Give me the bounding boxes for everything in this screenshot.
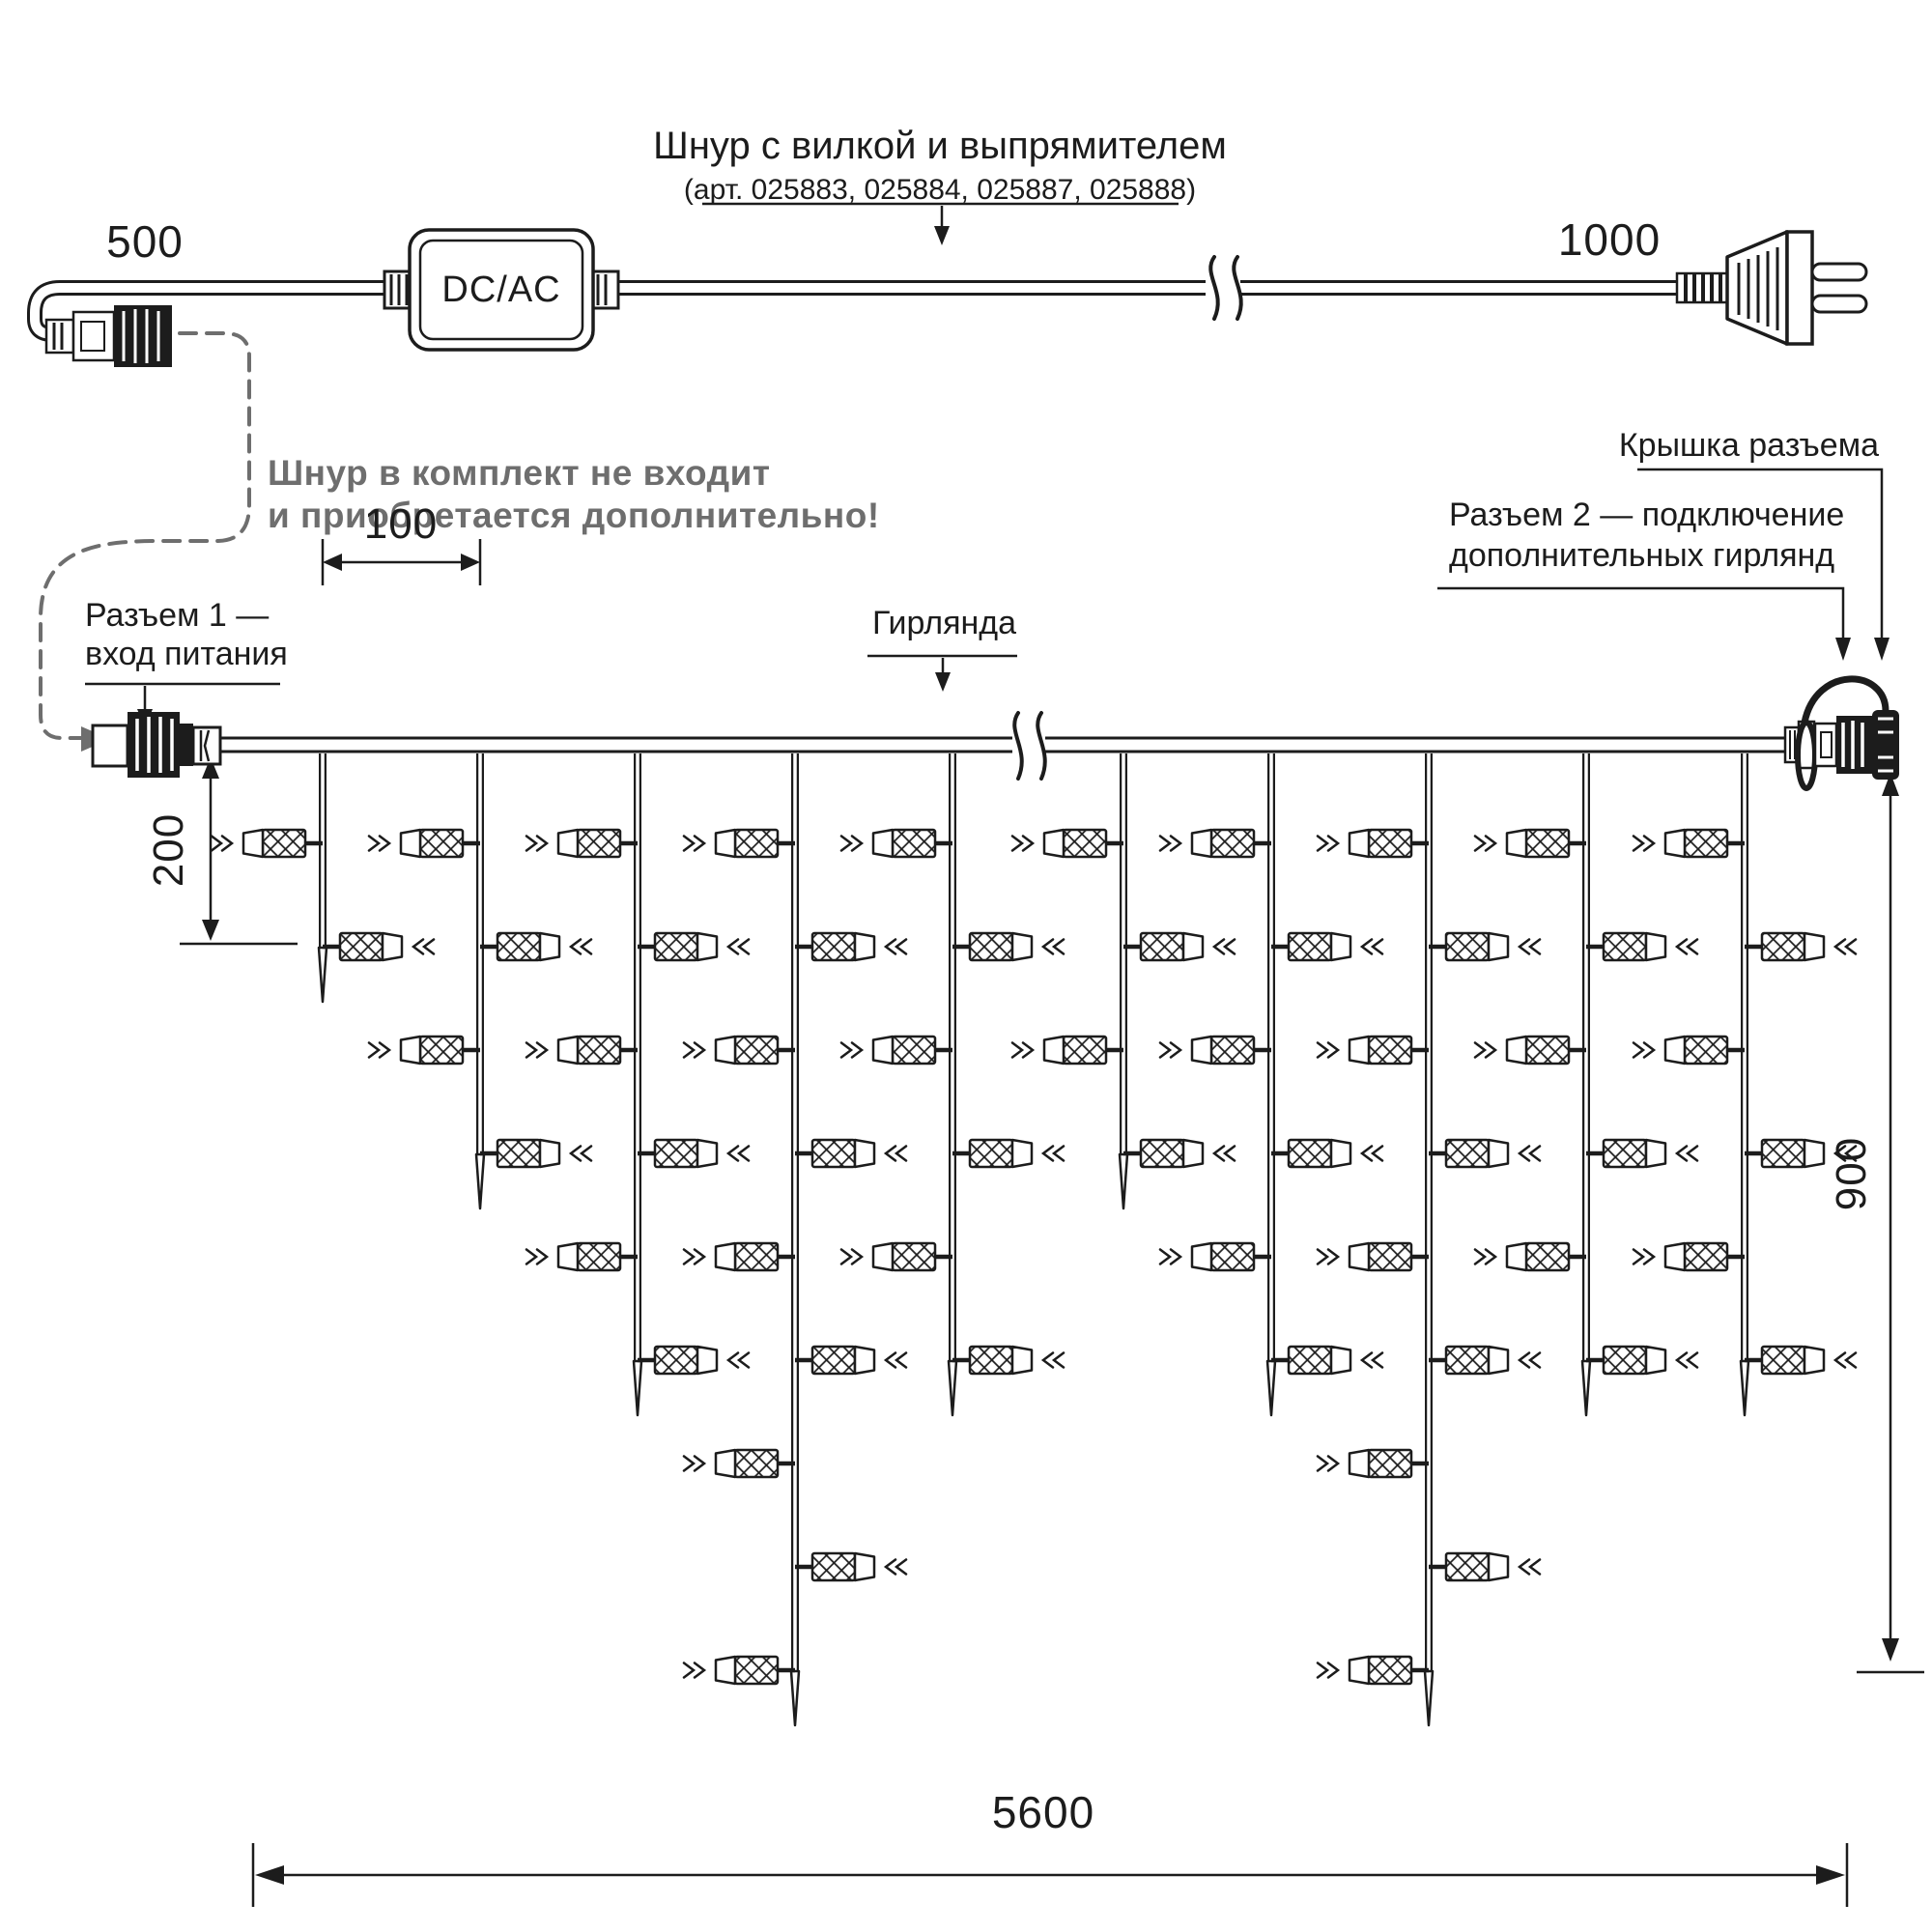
bulb-icon (480, 933, 591, 960)
bulb-rays-icon (369, 837, 379, 851)
dcac-label: DC/AC (419, 270, 583, 312)
cord-end-connector-icon (46, 305, 172, 367)
dimension-100-label: 100 (348, 500, 454, 550)
bulb-rays-icon (1328, 1043, 1338, 1058)
dimension-500-label: 500 (87, 216, 203, 268)
bulb-rays-icon (1328, 837, 1338, 851)
bulb-rays-icon (571, 940, 581, 954)
bulb-rays-icon (571, 1147, 581, 1161)
bulb-rays-icon (1475, 837, 1485, 851)
dimension-1000-label: 1000 (1542, 214, 1677, 266)
bulb-icon (684, 1243, 795, 1270)
bulb-rays-icon (413, 940, 423, 954)
bulb-icon (1745, 933, 1856, 960)
bulb-rays-icon (1023, 837, 1033, 851)
bulb-rays-icon (1520, 1147, 1529, 1161)
bulb-rays-icon (684, 1457, 694, 1471)
bulb-rays-icon (695, 837, 704, 851)
bulb-rays-icon (728, 1147, 738, 1161)
bulb-rays-icon (886, 1560, 895, 1575)
drop-tip-icon (1741, 1361, 1748, 1415)
bulb-rays-icon (1328, 1457, 1338, 1471)
bulb-icon (369, 830, 480, 857)
bulb-icon (1429, 1140, 1540, 1167)
connector-razem2-icon (1785, 679, 1899, 788)
bulb-icon (526, 830, 638, 857)
bulb-rays-icon (896, 1560, 906, 1575)
bulb-icon (1318, 1243, 1429, 1270)
bulb-icon (795, 1347, 906, 1374)
bulb-rays-icon (1328, 1250, 1338, 1264)
razem2-label-line2: дополнительных гирлянд (1449, 537, 1833, 575)
bulb-rays-icon (1318, 1663, 1327, 1678)
bulb-icon (1429, 1347, 1540, 1374)
razem1-label-line2: вход питания (85, 636, 288, 673)
bulb-rays-icon (739, 1353, 749, 1368)
bulb-rays-icon (526, 1250, 536, 1264)
razem1-label-line1: Разъем 1 — (85, 597, 269, 635)
bulb-rays-icon (1835, 1353, 1845, 1368)
bulb-rays-icon (537, 1043, 547, 1058)
bulb-icon (1586, 1140, 1697, 1167)
bulb-rays-icon (1214, 1147, 1224, 1161)
bulb-icon (1318, 1450, 1429, 1477)
garland-drops (212, 753, 1856, 1725)
bulb-rays-icon (1214, 940, 1224, 954)
bulb-rays-icon (526, 1043, 536, 1058)
bulb-icon (369, 1037, 480, 1064)
bulb-icon (795, 933, 906, 960)
bulb-rays-icon (841, 1250, 851, 1264)
bulb-rays-icon (380, 837, 389, 851)
garland-drop (1475, 753, 1697, 1415)
bulb-rays-icon (1171, 837, 1180, 851)
bulb-rays-icon (582, 1147, 591, 1161)
bulb-icon (1586, 1347, 1697, 1374)
garland-drop (369, 753, 591, 1208)
bulb-rays-icon (1328, 1663, 1338, 1678)
bulb-rays-icon (1688, 1353, 1697, 1368)
bulb-rays-icon (1644, 837, 1654, 851)
bulb-icon (1271, 933, 1382, 960)
bulb-rays-icon (1373, 1147, 1382, 1161)
bulb-rays-icon (582, 940, 591, 954)
bulb-icon (1160, 830, 1271, 857)
bulb-rays-icon (1362, 1353, 1372, 1368)
bulb-icon (1123, 1140, 1235, 1167)
drop-tip-icon (634, 1361, 641, 1415)
bulb-rays-icon (1486, 837, 1495, 851)
drop-tip-icon (1582, 1361, 1590, 1415)
bulb-icon (1271, 1140, 1382, 1167)
bulb-rays-icon (1160, 1250, 1170, 1264)
bulb-icon (1123, 933, 1235, 960)
garland-drop (1012, 753, 1235, 1208)
bulb-rays-icon (695, 1043, 704, 1058)
garland-drop (684, 753, 906, 1725)
bulb-rays-icon (728, 1353, 738, 1368)
garland-leader (867, 656, 1017, 692)
bulb-icon (526, 1243, 638, 1270)
diagram-linework (0, 0, 1932, 1932)
bulb-rays-icon (896, 1353, 906, 1368)
bulb-rays-icon (1012, 837, 1022, 851)
bulb-rays-icon (537, 837, 547, 851)
bulb-icon (1012, 1037, 1123, 1064)
cap-label: Крышка разъема (1546, 427, 1879, 465)
bulb-icon (1318, 1037, 1429, 1064)
bulb-icon (638, 1140, 749, 1167)
bulb-icon (1271, 1347, 1382, 1374)
bulb-rays-icon (1530, 940, 1540, 954)
bulb-rays-icon (1012, 1043, 1022, 1058)
bulb-icon (1634, 1243, 1745, 1270)
bulb-icon (480, 1140, 591, 1167)
bulb-rays-icon (1688, 940, 1697, 954)
bulb-rays-icon (1043, 1147, 1053, 1161)
bulb-rays-icon (1644, 1250, 1654, 1264)
bulb-rays-icon (1677, 1353, 1687, 1368)
razem2-label-line1: Разъем 2 — подключение (1449, 497, 1840, 534)
bulb-icon (1634, 1037, 1745, 1064)
bulb-icon (952, 933, 1064, 960)
bulb-rays-icon (1318, 837, 1327, 851)
bulb-rays-icon (1520, 1353, 1529, 1368)
bulb-rays-icon (886, 1147, 895, 1161)
bulb-rays-icon (1520, 940, 1529, 954)
drop-tip-icon (1120, 1154, 1127, 1208)
bulb-rays-icon (537, 1250, 547, 1264)
bulb-rays-icon (739, 1147, 749, 1161)
garland-drop (841, 753, 1064, 1415)
drop-tip-icon (949, 1361, 956, 1415)
bulb-rays-icon (1054, 940, 1064, 954)
bulb-rays-icon (1160, 837, 1170, 851)
bulb-rays-icon (1171, 1250, 1180, 1264)
power-cord (35, 288, 1677, 334)
bulb-rays-icon (1043, 1353, 1053, 1368)
bulb-rays-icon (526, 837, 536, 851)
bulb-rays-icon (1225, 1147, 1235, 1161)
bulb-rays-icon (1373, 940, 1382, 954)
bulb-icon (1160, 1243, 1271, 1270)
bulb-icon (1475, 1243, 1586, 1270)
drop-tip-icon (1267, 1361, 1275, 1415)
bulb-rays-icon (1846, 940, 1856, 954)
bulb-rays-icon (852, 837, 862, 851)
bulb-rays-icon (212, 837, 221, 851)
bulb-icon (1634, 830, 1745, 857)
garland-label: Гирлянда (872, 605, 1016, 642)
bulb-rays-icon (1362, 940, 1372, 954)
bulb-icon (1429, 1553, 1540, 1580)
bulb-rays-icon (695, 1457, 704, 1471)
bulb-icon (841, 1037, 952, 1064)
bulb-rays-icon (695, 1663, 704, 1678)
bulb-rays-icon (684, 1043, 694, 1058)
bulb-icon (1429, 933, 1540, 960)
note-line1: Шнур в комплект не входит (268, 453, 770, 495)
bulb-rays-icon (1318, 1250, 1327, 1264)
garland-drop (1318, 753, 1540, 1725)
bulb-rays-icon (1520, 1560, 1529, 1575)
bulb-rays-icon (1318, 1043, 1327, 1058)
bulb-rays-icon (1023, 1043, 1033, 1058)
cord-break-icon (1210, 257, 1241, 319)
bulb-icon (841, 830, 952, 857)
dimension-900-label: 900 (1828, 1116, 1870, 1232)
bulb-rays-icon (1486, 1250, 1495, 1264)
page-title: Шнур с вилкой и выпрямителем (554, 124, 1326, 168)
bulb-icon (795, 1140, 906, 1167)
bulb-icon (795, 1553, 906, 1580)
page-subtitle: (арт. 025883, 025884, 025887, 025888) (554, 174, 1326, 208)
bulb-rays-icon (1634, 837, 1643, 851)
bulb-icon (841, 1243, 952, 1270)
dimension-200-label: 200 (145, 792, 187, 908)
drop-tip-icon (791, 1671, 799, 1725)
bulb-rays-icon (1318, 1457, 1327, 1471)
bulb-rays-icon (1677, 940, 1687, 954)
bulb-icon (212, 830, 323, 857)
bulb-rays-icon (1475, 1250, 1485, 1264)
bulb-rays-icon (1835, 940, 1845, 954)
bulb-rays-icon (841, 1043, 851, 1058)
bulb-rays-icon (1225, 940, 1235, 954)
bulb-icon (1475, 1037, 1586, 1064)
bulb-rays-icon (841, 837, 851, 851)
bulb-rays-icon (1677, 1147, 1687, 1161)
bulb-rays-icon (1160, 1043, 1170, 1058)
bulb-rays-icon (424, 940, 434, 954)
bulb-rays-icon (684, 1663, 694, 1678)
bulb-rays-icon (1373, 1353, 1382, 1368)
bulb-rays-icon (1362, 1147, 1372, 1161)
bulb-rays-icon (1054, 1147, 1064, 1161)
bulb-icon (952, 1140, 1064, 1167)
connector-cap-icon (1872, 710, 1899, 780)
bulb-rays-icon (684, 1250, 694, 1264)
bulb-rays-icon (1043, 940, 1053, 954)
bulb-rays-icon (1846, 1353, 1856, 1368)
connector-razem1-icon (93, 712, 220, 778)
bulb-rays-icon (1530, 1353, 1540, 1368)
bulb-rays-icon (886, 940, 895, 954)
drop-tip-icon (319, 948, 327, 1002)
bulb-icon (638, 1347, 749, 1374)
bulb-rays-icon (852, 1043, 862, 1058)
bulb-icon (1586, 933, 1697, 960)
drop-tip-icon (1425, 1671, 1433, 1725)
bulb-icon (638, 933, 749, 960)
europlug-icon (1677, 232, 1866, 344)
bulb-rays-icon (852, 1250, 862, 1264)
bulb-icon (684, 830, 795, 857)
bulb-rays-icon (222, 837, 232, 851)
bulb-rays-icon (728, 940, 738, 954)
garland-break-icon (1014, 713, 1045, 779)
bulb-rays-icon (1530, 1560, 1540, 1575)
bulb-icon (684, 1450, 795, 1477)
bulb-icon (1012, 830, 1123, 857)
garland-drop (1634, 753, 1856, 1415)
dimension-5600-label: 5600 (966, 1787, 1121, 1838)
bulb-rays-icon (1688, 1147, 1697, 1161)
bulb-icon (952, 1347, 1064, 1374)
bulb-icon (526, 1037, 638, 1064)
razem2-leader (1437, 588, 1851, 661)
bulb-rays-icon (369, 1043, 379, 1058)
bulb-rays-icon (1486, 1043, 1495, 1058)
bulb-icon (1475, 830, 1586, 857)
razem1-leader (85, 684, 280, 728)
title-leader-arrow (702, 204, 1179, 245)
bulb-icon (1318, 1657, 1429, 1684)
drop-tip-icon (476, 1154, 484, 1208)
bulb-icon (684, 1037, 795, 1064)
bulb-rays-icon (1530, 1147, 1540, 1161)
bulb-rays-icon (1644, 1043, 1654, 1058)
bulb-icon (1318, 830, 1429, 857)
bulb-icon (684, 1657, 795, 1684)
bulb-rays-icon (886, 1353, 895, 1368)
bulb-rays-icon (1475, 1043, 1485, 1058)
bulb-rays-icon (695, 1250, 704, 1264)
diagram-canvas: Шнур с вилкой и выпрямителем (арт. 02588… (0, 0, 1932, 1932)
bulb-rays-icon (1634, 1250, 1643, 1264)
bulb-rays-icon (896, 940, 906, 954)
bulb-rays-icon (1054, 1353, 1064, 1368)
bulb-icon (323, 933, 434, 960)
bulb-rays-icon (739, 940, 749, 954)
garland-drop (212, 753, 434, 1002)
bulb-rays-icon (1634, 1043, 1643, 1058)
bulb-rays-icon (896, 1147, 906, 1161)
bulb-icon (1160, 1037, 1271, 1064)
bulb-rays-icon (684, 837, 694, 851)
bulb-rays-icon (380, 1043, 389, 1058)
bulb-icon (1745, 1347, 1856, 1374)
bulb-rays-icon (1171, 1043, 1180, 1058)
dimension-5600 (253, 1843, 1847, 1907)
